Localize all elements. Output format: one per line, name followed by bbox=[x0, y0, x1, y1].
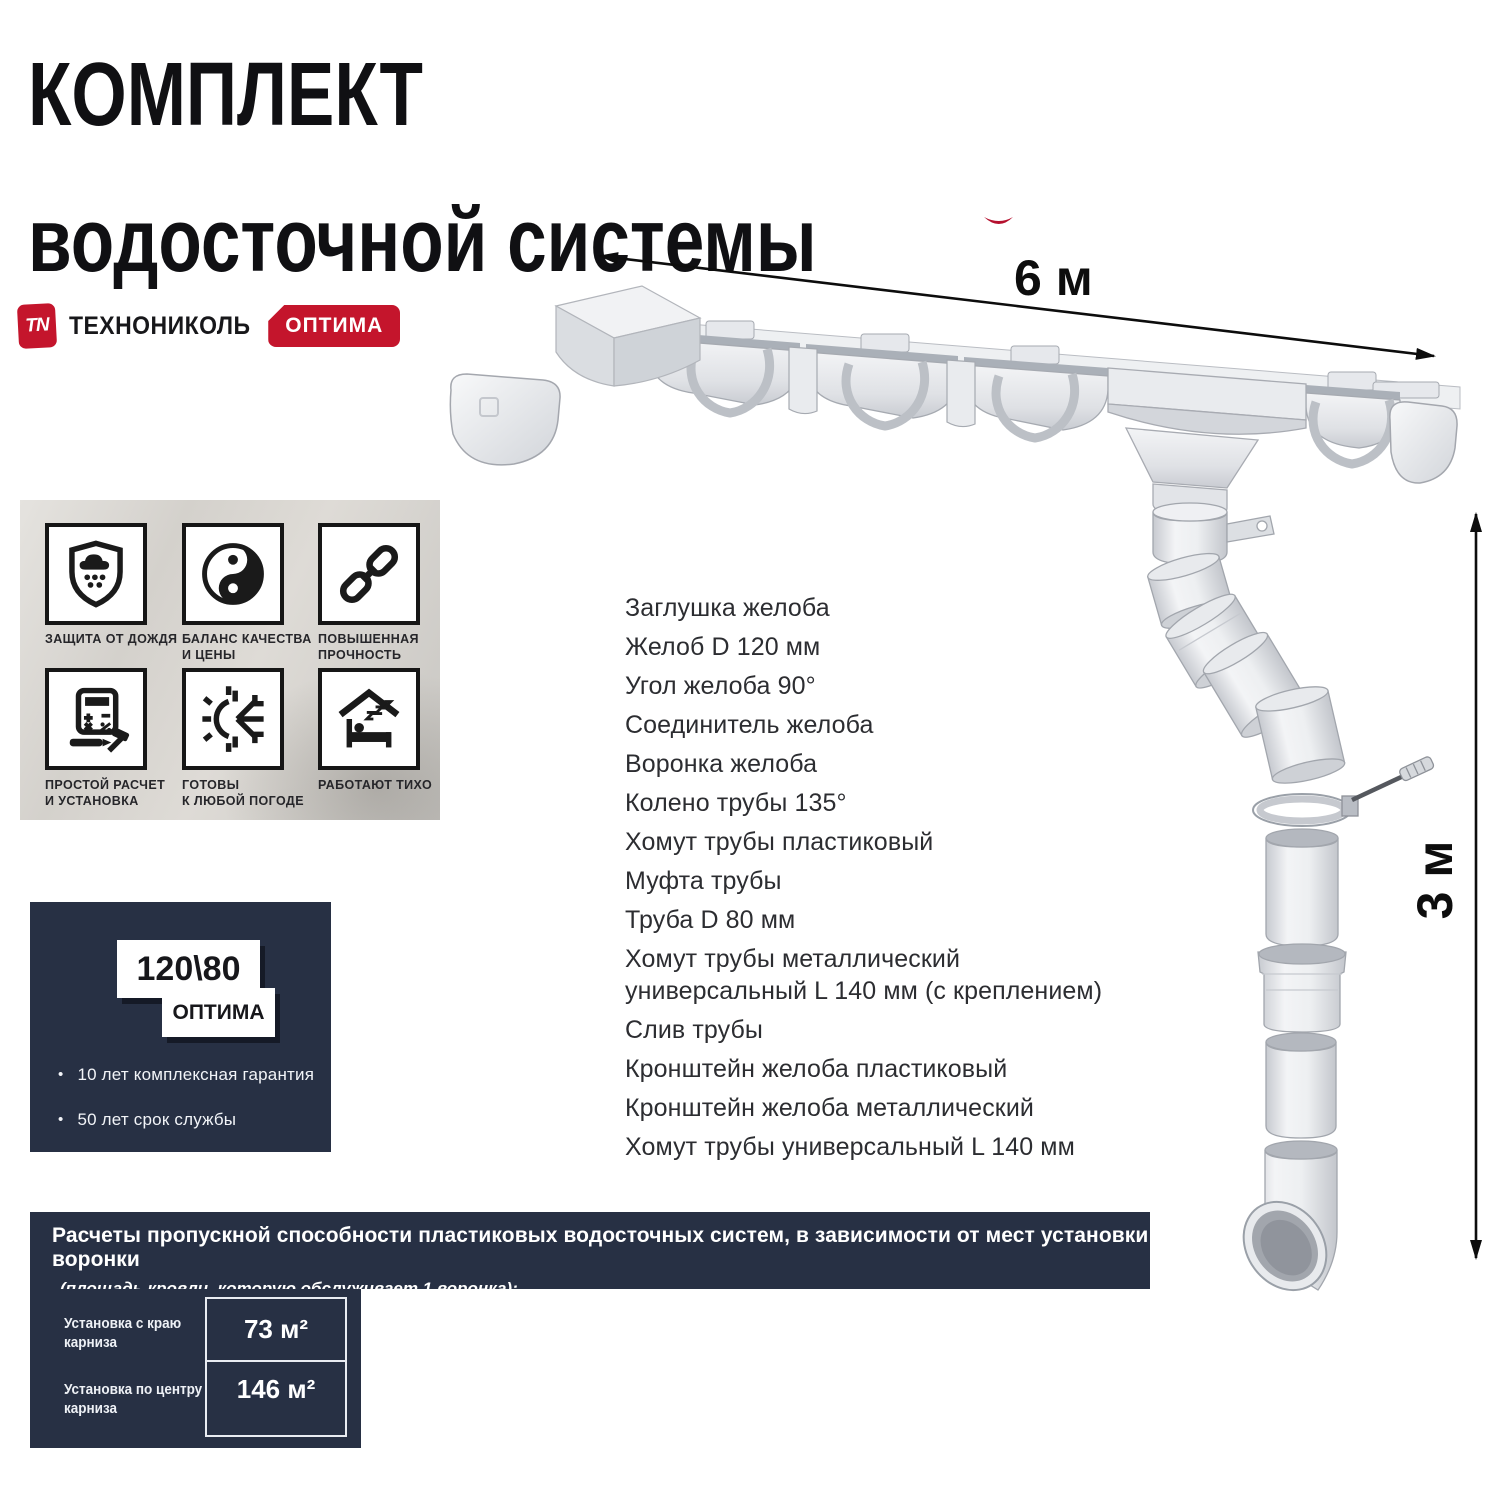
yin-yang-icon bbox=[198, 539, 268, 609]
feature-tile-weather bbox=[182, 668, 284, 770]
series-badge: ОПТИМА bbox=[268, 305, 400, 347]
pipe-outlet bbox=[1227, 1141, 1344, 1305]
capacity-row-label: Установка с краю карниза bbox=[64, 1315, 181, 1353]
capacity-table: Установка с краю карниза Установка по це… bbox=[30, 1289, 361, 1448]
capacity-value-cell: 73 м² bbox=[205, 1297, 347, 1362]
quiet-home-icon bbox=[334, 684, 404, 754]
red-accent-mark bbox=[984, 217, 1013, 224]
feature-tile-strength bbox=[318, 523, 420, 625]
calculator-icon bbox=[61, 684, 131, 754]
gutter-coupler bbox=[789, 347, 817, 414]
feature-label: ГОТОВЫ К ЛЮБОЙ ПОГОДЕ bbox=[182, 777, 322, 810]
gutter-funnel bbox=[1108, 368, 1306, 519]
feature-label: ЗАЩИТА ОТ ДОЖДЯ bbox=[45, 631, 185, 647]
brand-name: ТЕХНОНИКОЛЬ bbox=[69, 312, 250, 341]
gutter-length-label: 6 м bbox=[1014, 250, 1093, 306]
chain-icon bbox=[334, 539, 404, 609]
shield-rain-icon bbox=[61, 539, 131, 609]
feature-tile-balance bbox=[182, 523, 284, 625]
gutter-end-cap-left bbox=[450, 374, 560, 465]
gutter-run bbox=[450, 286, 1460, 483]
features-panel: ЗАЩИТА ОТ ДОЖДЯ БАЛАНС КАЧЕСТВА И ЦЕНЫ П… bbox=[20, 500, 440, 820]
pipe-bracket-arm bbox=[1227, 516, 1274, 542]
series-label-badge: ОПТИМА bbox=[162, 988, 275, 1037]
capacity-row-label: Установка по центру карниза bbox=[64, 1381, 202, 1419]
gutter-coupler bbox=[947, 360, 975, 427]
brand-logo: TN ТЕХНОНИКОЛЬ ОПТИМА bbox=[18, 301, 400, 351]
lifetime-bullet: 50 лет срок службы bbox=[58, 1110, 236, 1130]
downpipe-height-label: 3 м bbox=[1407, 841, 1463, 920]
gutter-system-diagram: 6 м 3 м bbox=[410, 195, 1500, 1305]
feature-label: БАЛАНС КАЧЕСТВА И ЦЕНЫ bbox=[182, 631, 322, 664]
gutter-corner-90 bbox=[556, 286, 700, 386]
feature-tile-calc bbox=[45, 668, 147, 770]
gutter-end-cap-right bbox=[1390, 402, 1457, 483]
feature-label: ПРОСТОЙ РАСЧЕТ И УСТАНОВКА bbox=[45, 777, 185, 810]
capacity-value-cell: 146 м² bbox=[205, 1360, 347, 1437]
downpipe-assembly bbox=[1145, 503, 1434, 1305]
spec-card: 120\80 ОПТИМА 10 лет комплексная гаранти… bbox=[30, 902, 331, 1152]
technonicol-logo-icon: TN bbox=[17, 303, 57, 349]
warranty-bullet: 10 лет комплексная гарантия bbox=[58, 1065, 314, 1085]
feature-tile-quiet bbox=[318, 668, 420, 770]
feature-tile-rain bbox=[45, 523, 147, 625]
sun-snowflake-icon bbox=[198, 684, 268, 754]
